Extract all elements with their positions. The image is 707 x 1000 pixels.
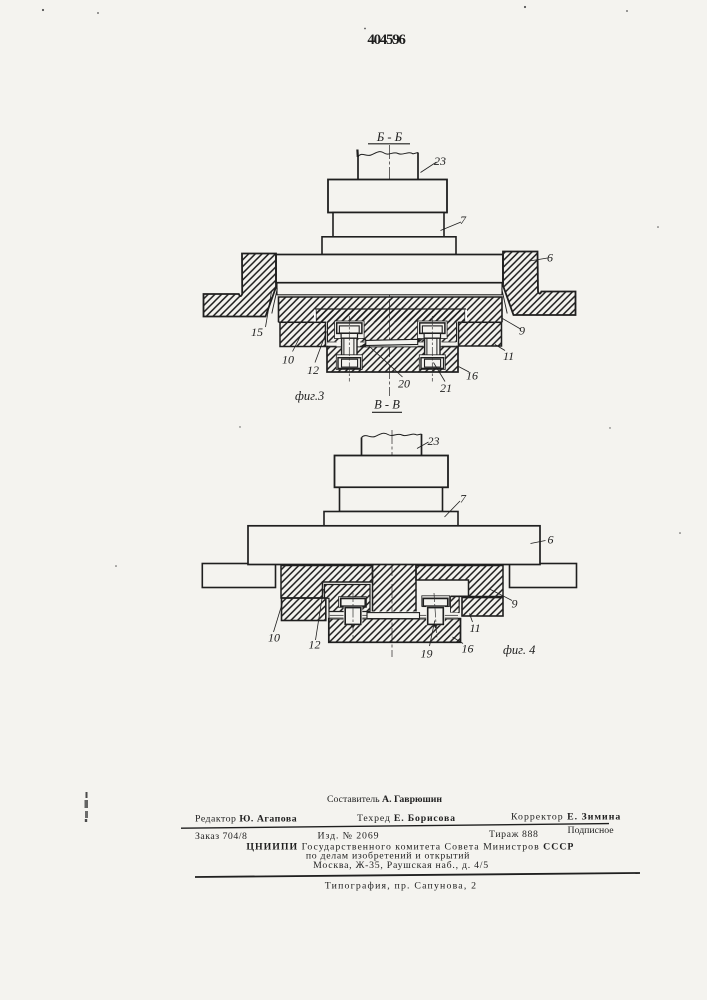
svg-text:Заказ 704/8: Заказ 704/8 [195,831,247,842]
svg-text:9: 9 [512,597,518,611]
svg-text:12: 12 [309,638,321,652]
svg-text:20: 20 [398,377,410,391]
svg-text:11: 11 [503,349,514,363]
svg-text:10: 10 [282,353,294,367]
svg-text:Изд. № 2069: Изд. № 2069 [318,830,380,841]
svg-text:10: 10 [268,631,280,645]
svg-text:Подписное: Подписное [568,825,615,836]
svg-text:9: 9 [519,324,525,338]
svg-text:Редактор Ю. Агапова: Редактор Ю. Агапова [195,814,297,825]
svg-text:12: 12 [307,363,319,377]
svg-text:16: 16 [466,369,478,383]
svg-text:23: 23 [434,154,446,168]
svg-text:Москва, Ж-35, Раушская наб., д: Москва, Ж-35, Раушская наб., д. 4/5 [313,860,489,871]
svg-text:фиг.3: фиг.3 [295,389,324,403]
svg-text:23: 23 [428,434,440,448]
svg-text:Б - Б: Б - Б [376,130,403,144]
svg-text:16: 16 [462,642,474,656]
svg-text:В - В: В - В [374,398,400,412]
svg-text:7: 7 [460,213,467,227]
svg-text:6: 6 [548,533,554,547]
svg-text:Составитель А. Гаврюшин: Составитель А. Гаврюшин [327,794,442,805]
svg-text:19: 19 [421,647,433,661]
svg-text:7: 7 [460,492,467,506]
svg-text:Техред Е. Борисова: Техред Е. Борисова [357,813,456,824]
svg-text:Тираж 888: Тираж 888 [489,829,539,840]
svg-text:15: 15 [251,325,263,339]
svg-text:21: 21 [440,381,452,395]
svg-text:Типография, пр. Сапунова, 2: Типография, пр. Сапунова, 2 [325,881,478,892]
svg-text:6: 6 [547,251,553,265]
svg-text:фиг. 4: фиг. 4 [503,643,535,657]
svg-text:11: 11 [470,621,481,635]
svg-text:Корректор Е. Зимина: Корректор Е. Зимина [511,812,621,823]
